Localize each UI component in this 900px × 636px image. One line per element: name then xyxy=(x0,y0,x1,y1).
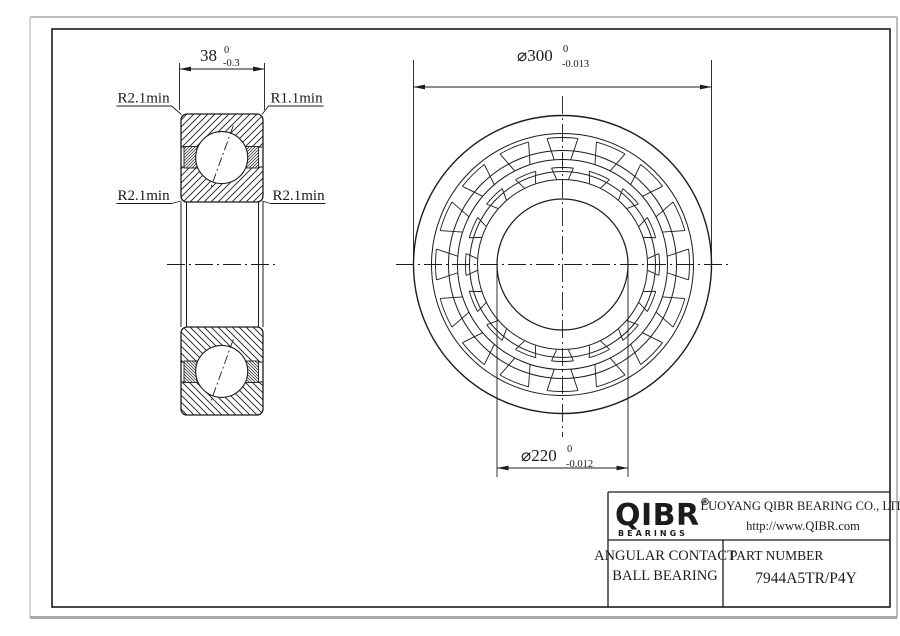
company-name: LUOYANG QIBR BEARING CO., LTD xyxy=(700,499,900,513)
radius-label-top-left: R2.1min xyxy=(118,91,171,107)
width-dim-value: 38 xyxy=(200,46,217,65)
radius-label-mid-left: R2.1min xyxy=(118,188,171,204)
logo-text: QIBR xyxy=(615,498,700,533)
company-website: http://www.QIBR.com xyxy=(746,519,860,533)
company-logo: QIBR ® BEARINGS xyxy=(615,497,710,538)
width-dim-tol-upper: 0 xyxy=(224,45,229,56)
part-number-label: PART NUMBER xyxy=(730,548,823,563)
title-block: QIBR ® BEARINGS LUOYANG QIBR BEARING CO.… xyxy=(594,492,900,607)
product-type-line2: BALL BEARING xyxy=(612,568,718,584)
radius-label-mid-right: R2.1min xyxy=(273,188,326,204)
width-dimension: 38 0 -0.3 xyxy=(180,45,265,110)
part-number-value: 7944A5TR/P4Y xyxy=(755,570,857,587)
logo-subtext: BEARINGS xyxy=(618,529,688,538)
bore-dia-value: ⌀220 xyxy=(521,446,557,465)
product-type-line1: ANGULAR CONTACT xyxy=(594,548,736,564)
drawing-sheet: 38 0 -0.3 R2.1min R1.1min R2.1min R2.1mi… xyxy=(0,0,900,636)
outer-dia-tol-upper: 0 xyxy=(563,44,568,55)
section-view: 38 0 -0.3 R2.1min R1.1min R2.1min R2.1mi… xyxy=(117,45,326,415)
bore-lines xyxy=(181,202,263,327)
radius-label-top-right: R1.1min xyxy=(271,91,324,107)
bearing-drawing: 38 0 -0.3 R2.1min R1.1min R2.1min R2.1mi… xyxy=(0,0,900,636)
front-view: ⌀300 0 -0.013 ⌀220 0 -0.012 xyxy=(396,44,728,477)
bore-dia-tol-upper: 0 xyxy=(567,444,572,455)
width-dim-tol-lower: -0.3 xyxy=(223,58,240,69)
outer-dia-value: ⌀300 xyxy=(517,46,553,65)
bore-dia-tol-lower: -0.012 xyxy=(566,459,593,470)
outer-dia-tol-lower: -0.013 xyxy=(562,59,589,70)
bore-dia-dimension: ⌀220 0 -0.012 xyxy=(497,259,628,477)
